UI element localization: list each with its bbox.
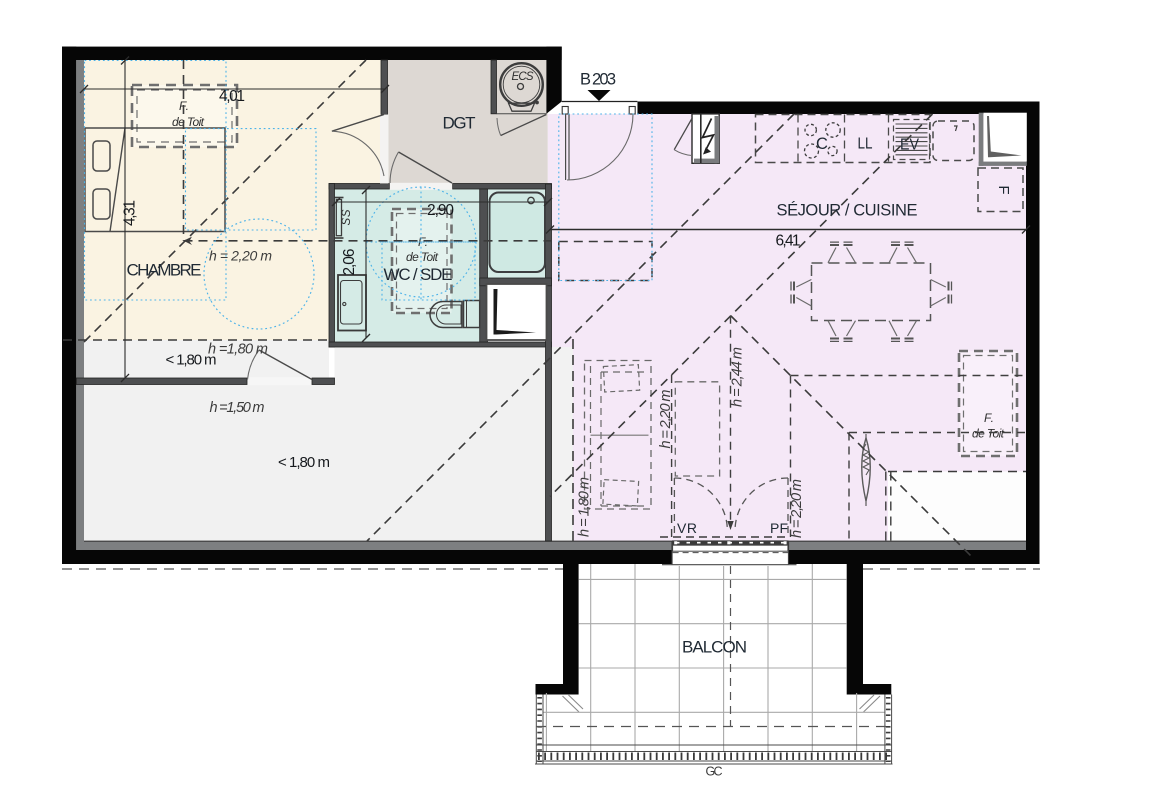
svg-text:6,41: 6,41 — [776, 233, 801, 250]
svg-text:2,06: 2,06 — [341, 249, 358, 276]
svg-text:F.: F. — [984, 411, 994, 425]
svg-text:LL: LL — [858, 136, 873, 153]
svg-text:EV: EV — [900, 137, 919, 154]
svg-text:4,01: 4,01 — [219, 88, 245, 105]
svg-text:h =1,50 m: h =1,50 m — [210, 400, 265, 416]
svg-text:F: F — [995, 185, 1012, 194]
svg-text:h = 2,20 m: h = 2,20 m — [789, 479, 805, 538]
svg-text:h = 1,80 m: h = 1,80 m — [577, 477, 593, 537]
svg-text:h = 2,44 m: h = 2,44 m — [730, 347, 746, 407]
svg-text:h =1,80 m: h =1,80 m — [208, 342, 268, 358]
svg-text:WC / SDE: WC / SDE — [384, 265, 453, 284]
svg-text:B 203: B 203 — [580, 71, 616, 89]
svg-text:< 1,80 m: < 1,80 m — [278, 454, 330, 471]
svg-text:SS: SS — [341, 209, 353, 225]
svg-text:DGT: DGT — [443, 114, 476, 133]
svg-text:2,90: 2,90 — [427, 202, 454, 219]
svg-text:de Toit: de Toit — [972, 427, 1005, 441]
svg-text:4,31: 4,31 — [122, 200, 139, 226]
svg-text:SÉJOUR / CUISINE: SÉJOUR / CUISINE — [777, 201, 918, 220]
svg-text:h = 2,20 m: h = 2,20 m — [658, 390, 674, 449]
svg-text:< 1,80 m: < 1,80 m — [166, 352, 217, 369]
svg-text:PF: PF — [770, 520, 788, 536]
svg-text:GC: GC — [706, 765, 723, 779]
svg-text:C: C — [816, 135, 828, 153]
svg-text:BALCON: BALCON — [682, 638, 747, 657]
svg-text:CHAMBRE: CHAMBRE — [127, 261, 202, 280]
svg-text:ECS: ECS — [512, 71, 534, 83]
svg-text:h = 2,20 m: h = 2,20 m — [209, 248, 272, 264]
svg-text:VR: VR — [677, 520, 697, 536]
svg-text:de Toit: de Toit — [406, 250, 439, 264]
svg-text:de Toit: de Toit — [172, 115, 205, 129]
